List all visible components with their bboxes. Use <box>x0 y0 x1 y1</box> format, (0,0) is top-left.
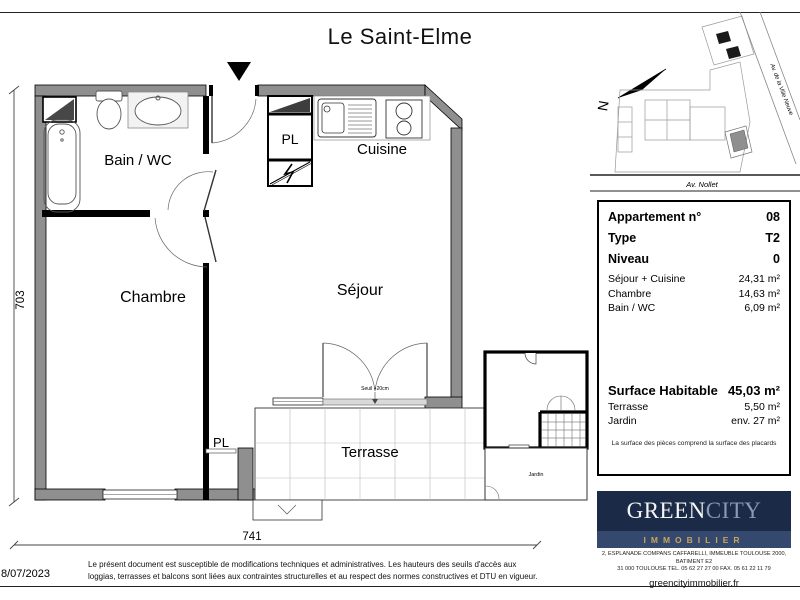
floor-plan: 703 741 <box>0 50 600 555</box>
info-note: La surface des pièces comprend la surfac… <box>608 440 780 447</box>
agency-address: 2, ESPLANADE COMPANS CAFFARELLI, IMMEUBL… <box>597 551 791 574</box>
french-doors <box>323 343 427 404</box>
area-value: 24,31 m² <box>739 273 780 285</box>
legal-disclaimer-line2: loggias, terrasses et balcons sont liées… <box>88 571 538 583</box>
apartment-value: 08 <box>766 210 780 224</box>
entrance-door <box>209 62 259 143</box>
type-label: Type <box>608 231 636 245</box>
area-row: Bain / WC 6,09 m² <box>608 302 780 314</box>
site-highlight-units <box>716 31 748 152</box>
agency-website: greencityimmobilier.fr <box>597 578 791 589</box>
agency-logo-block: GREENCITY IMMOBILIER 2, ESPLANADE COMPAN… <box>597 491 791 589</box>
extra-label: Terrasse <box>608 401 648 413</box>
legal-disclaimer: Le présent document est susceptible de m… <box>88 559 538 582</box>
street-bottom: Av. Nollet <box>590 175 800 191</box>
washbasin-icon <box>128 92 188 128</box>
room-label-sejour: Séjour <box>337 282 384 299</box>
info-row-apartment: Appartement n° 08 <box>608 210 780 224</box>
garden-mini-plan: Jardin <box>485 352 587 500</box>
bathtub-icon <box>44 120 80 212</box>
terrace-step <box>253 500 322 520</box>
kitchen-counter <box>314 96 430 140</box>
area-label: Bain / WC <box>608 302 655 314</box>
logo-immobilier-band: IMMOBILIER <box>597 531 791 548</box>
extra-value: 5,50 m² <box>744 401 780 413</box>
entrance-arrow-icon <box>227 62 251 81</box>
street-diagonal-label: Av. de la Ville Neuve <box>768 62 794 117</box>
area-value: 14,63 m² <box>739 288 780 300</box>
surface-value: 45,03 m² <box>728 383 780 398</box>
svg-text:N: N <box>594 99 612 112</box>
agency-address-line1: 2, ESPLANADE COMPANS CAFFARELLI, IMMEUBL… <box>597 551 791 566</box>
area-label: Séjour + Cuisine <box>608 273 685 285</box>
document-date: 8/07/2023 <box>1 568 50 580</box>
bedroom-door <box>155 217 216 267</box>
info-row-surface: Surface Habitable 45,03 m² <box>608 383 780 398</box>
area-row: Chambre 14,63 m² <box>608 288 780 300</box>
room-label-jardin: Jardin <box>529 472 544 478</box>
legal-disclaimer-line1: Le présent document est susceptible de m… <box>88 559 538 571</box>
area-row: Séjour + Cuisine 24,31 m² <box>608 273 780 285</box>
threshold-label: Seuil +20cm <box>361 386 389 392</box>
street-diagonal: Av. de la Ville Neuve <box>740 12 800 164</box>
apartment-info-panel: Appartement n° 08 Type T2 Niveau 0 Séjou… <box>597 200 791 476</box>
street-bottom-label: Av. Nollet <box>685 180 718 189</box>
extra-row: Terrasse 5,50 m² <box>608 401 780 413</box>
extra-row: Jardin env. 27 m² <box>608 415 780 427</box>
toilet-icon <box>96 91 122 129</box>
room-label-chambre: Chambre <box>120 289 186 306</box>
info-row-level: Niveau 0 <box>608 252 780 266</box>
type-value: T2 <box>765 231 780 245</box>
level-label: Niveau <box>608 252 649 266</box>
room-label-pl-entrance: PL <box>281 131 298 147</box>
room-label-cuisine: Cuisine <box>357 141 407 158</box>
greencity-logo: GREENCITY <box>597 491 791 531</box>
agency-address-line2: 31 000 TOULOUSE TEL. 05 62 27 27 00 FAX.… <box>597 566 791 574</box>
area-label: Chambre <box>608 288 651 300</box>
bathroom-door <box>168 170 216 211</box>
room-label-bain: Bain / WC <box>104 152 172 169</box>
dim-width-label: 741 <box>242 531 261 543</box>
surface-label: Surface Habitable <box>608 383 718 398</box>
room-label-pl-bottom: PL <box>213 435 229 450</box>
room-label-terrasse: Terrasse <box>341 444 399 461</box>
extra-label: Jardin <box>608 415 637 427</box>
logo-city-text: CITY <box>706 498 762 524</box>
apartment-label: Appartement n° <box>608 210 701 224</box>
extra-value: env. 27 m² <box>731 415 780 427</box>
info-row-type: Type T2 <box>608 231 780 245</box>
area-value: 6,09 m² <box>744 302 780 314</box>
technical-shaft <box>43 97 76 122</box>
north-arrow-icon: N <box>594 69 666 112</box>
site-map: N Av. de la Ville Neuve Av. Nollet <box>590 12 800 197</box>
dim-height-label: 703 <box>15 290 27 309</box>
info-spacer <box>608 317 780 383</box>
level-value: 0 <box>773 252 780 266</box>
kitchen-sink-icon <box>318 99 376 137</box>
logo-green-text: GREEN <box>627 498 706 524</box>
